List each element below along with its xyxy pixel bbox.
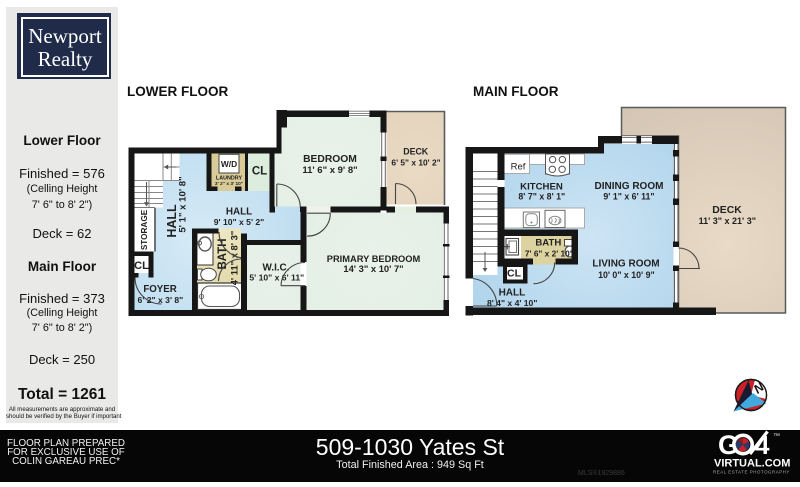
svg-text:CL: CL [252, 166, 267, 178]
svg-text:LOWER FLOOR: LOWER FLOOR [127, 84, 228, 99]
svg-text:3' 2" x 3' 10": 3' 2" x 3' 10" [215, 181, 243, 187]
svg-text:W/D: W/D [221, 159, 237, 169]
svg-text:6' 5" x 10' 2": 6' 5" x 10' 2" [391, 158, 440, 168]
svg-text:11' 3" x 21' 3": 11' 3" x 21' 3" [699, 216, 756, 226]
svg-text:STORAGE: STORAGE [140, 209, 149, 250]
svg-text:CL: CL [507, 268, 522, 280]
svg-text:6' 2" x 3' 8": 6' 2" x 3' 8" [138, 295, 184, 305]
svg-text:LIVING ROOM: LIVING ROOM [592, 258, 659, 269]
svg-text:FOYER: FOYER [143, 284, 176, 295]
svg-text:10' 0" x 10' 9": 10' 0" x 10' 9" [598, 270, 655, 280]
svg-text:LAUNDRY: LAUNDRY [216, 176, 243, 182]
svg-text:5' 10" x 6' 11": 5' 10" x 6' 11" [249, 272, 304, 282]
svg-text:9' 10" x 5' 2": 9' 10" x 5' 2" [214, 217, 264, 227]
svg-text:HALL: HALL [499, 288, 526, 299]
svg-text:4' 11" x 8' 3": 4' 11" x 8' 3" [228, 231, 239, 286]
svg-text:11' 6" x 9' 8": 11' 6" x 9' 8" [302, 165, 357, 176]
svg-text:MAIN FLOOR: MAIN FLOOR [473, 84, 559, 99]
svg-text:DECK: DECK [712, 205, 742, 216]
svg-text:HALL: HALL [226, 207, 252, 218]
svg-text:Ref: Ref [511, 162, 526, 173]
svg-text:5' 1" x 10' 8": 5' 1" x 10' 8" [178, 176, 189, 232]
svg-text:14' 3" x 10' 7": 14' 3" x 10' 7" [343, 263, 403, 274]
svg-text:BATH: BATH [535, 238, 561, 249]
svg-text:BEDROOM: BEDROOM [303, 154, 357, 165]
svg-text:DINING ROOM: DINING ROOM [595, 181, 664, 192]
svg-text:7' 6" x 2' 10": 7' 6" x 2' 10" [525, 248, 574, 258]
svg-text:9' 1" x 6' 11": 9' 1" x 6' 11" [603, 192, 654, 202]
svg-text:CL: CL [134, 260, 149, 272]
svg-text:BATH: BATH [217, 238, 229, 269]
svg-text:DECK: DECK [403, 147, 429, 157]
svg-text:8' 7" x 8' 1": 8' 7" x 8' 1" [518, 192, 565, 202]
